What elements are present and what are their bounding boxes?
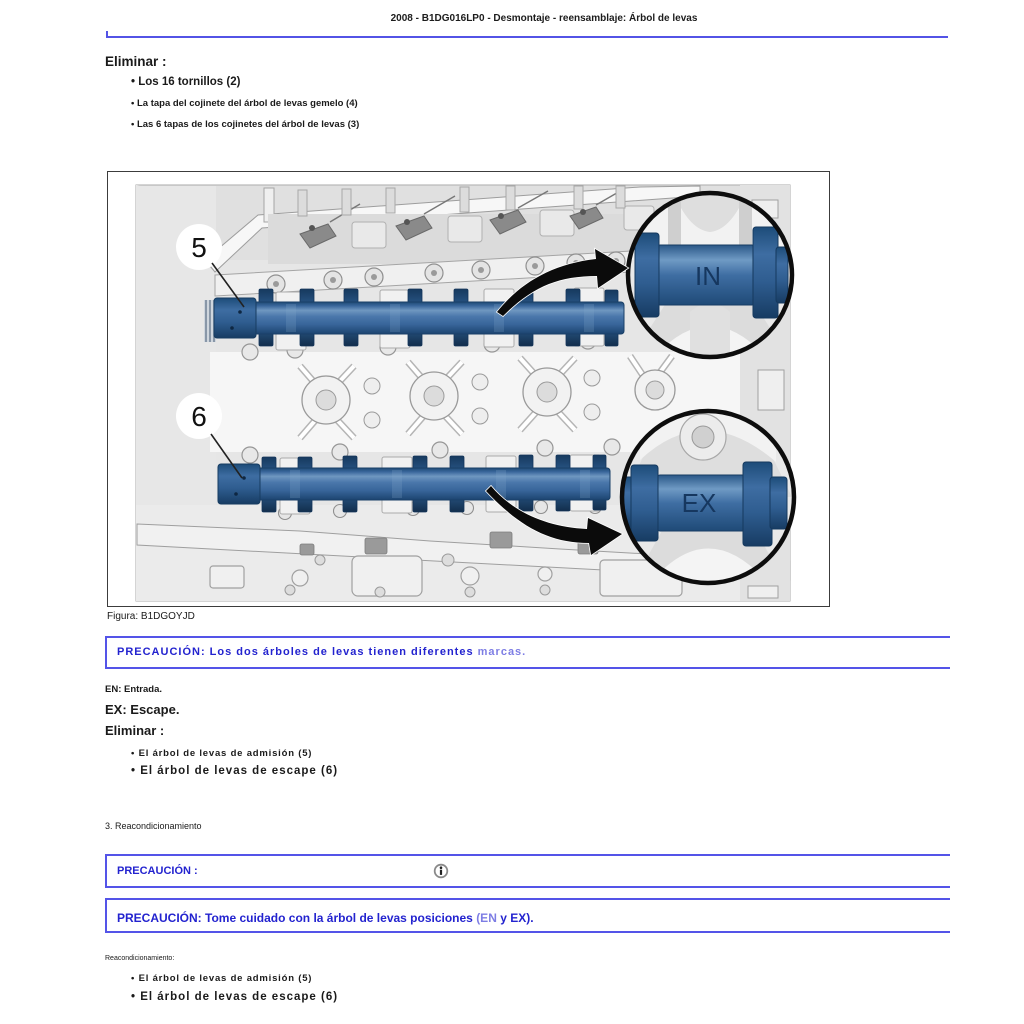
- svg-text:6: 6: [191, 401, 207, 432]
- svg-text:5: 5: [191, 232, 207, 263]
- svg-text:IN: IN: [695, 261, 721, 291]
- svg-text:EX: EX: [682, 488, 717, 518]
